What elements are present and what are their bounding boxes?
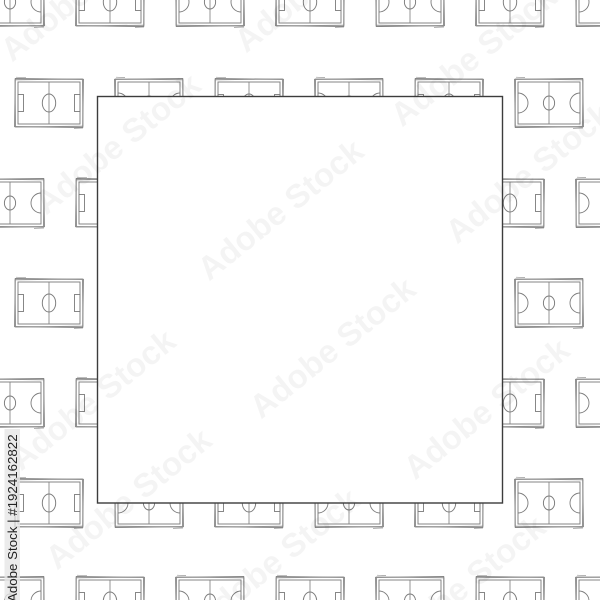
svg-text:Adobe Stock | #1924162822: Adobe Stock | #1924162822 — [5, 434, 20, 600]
